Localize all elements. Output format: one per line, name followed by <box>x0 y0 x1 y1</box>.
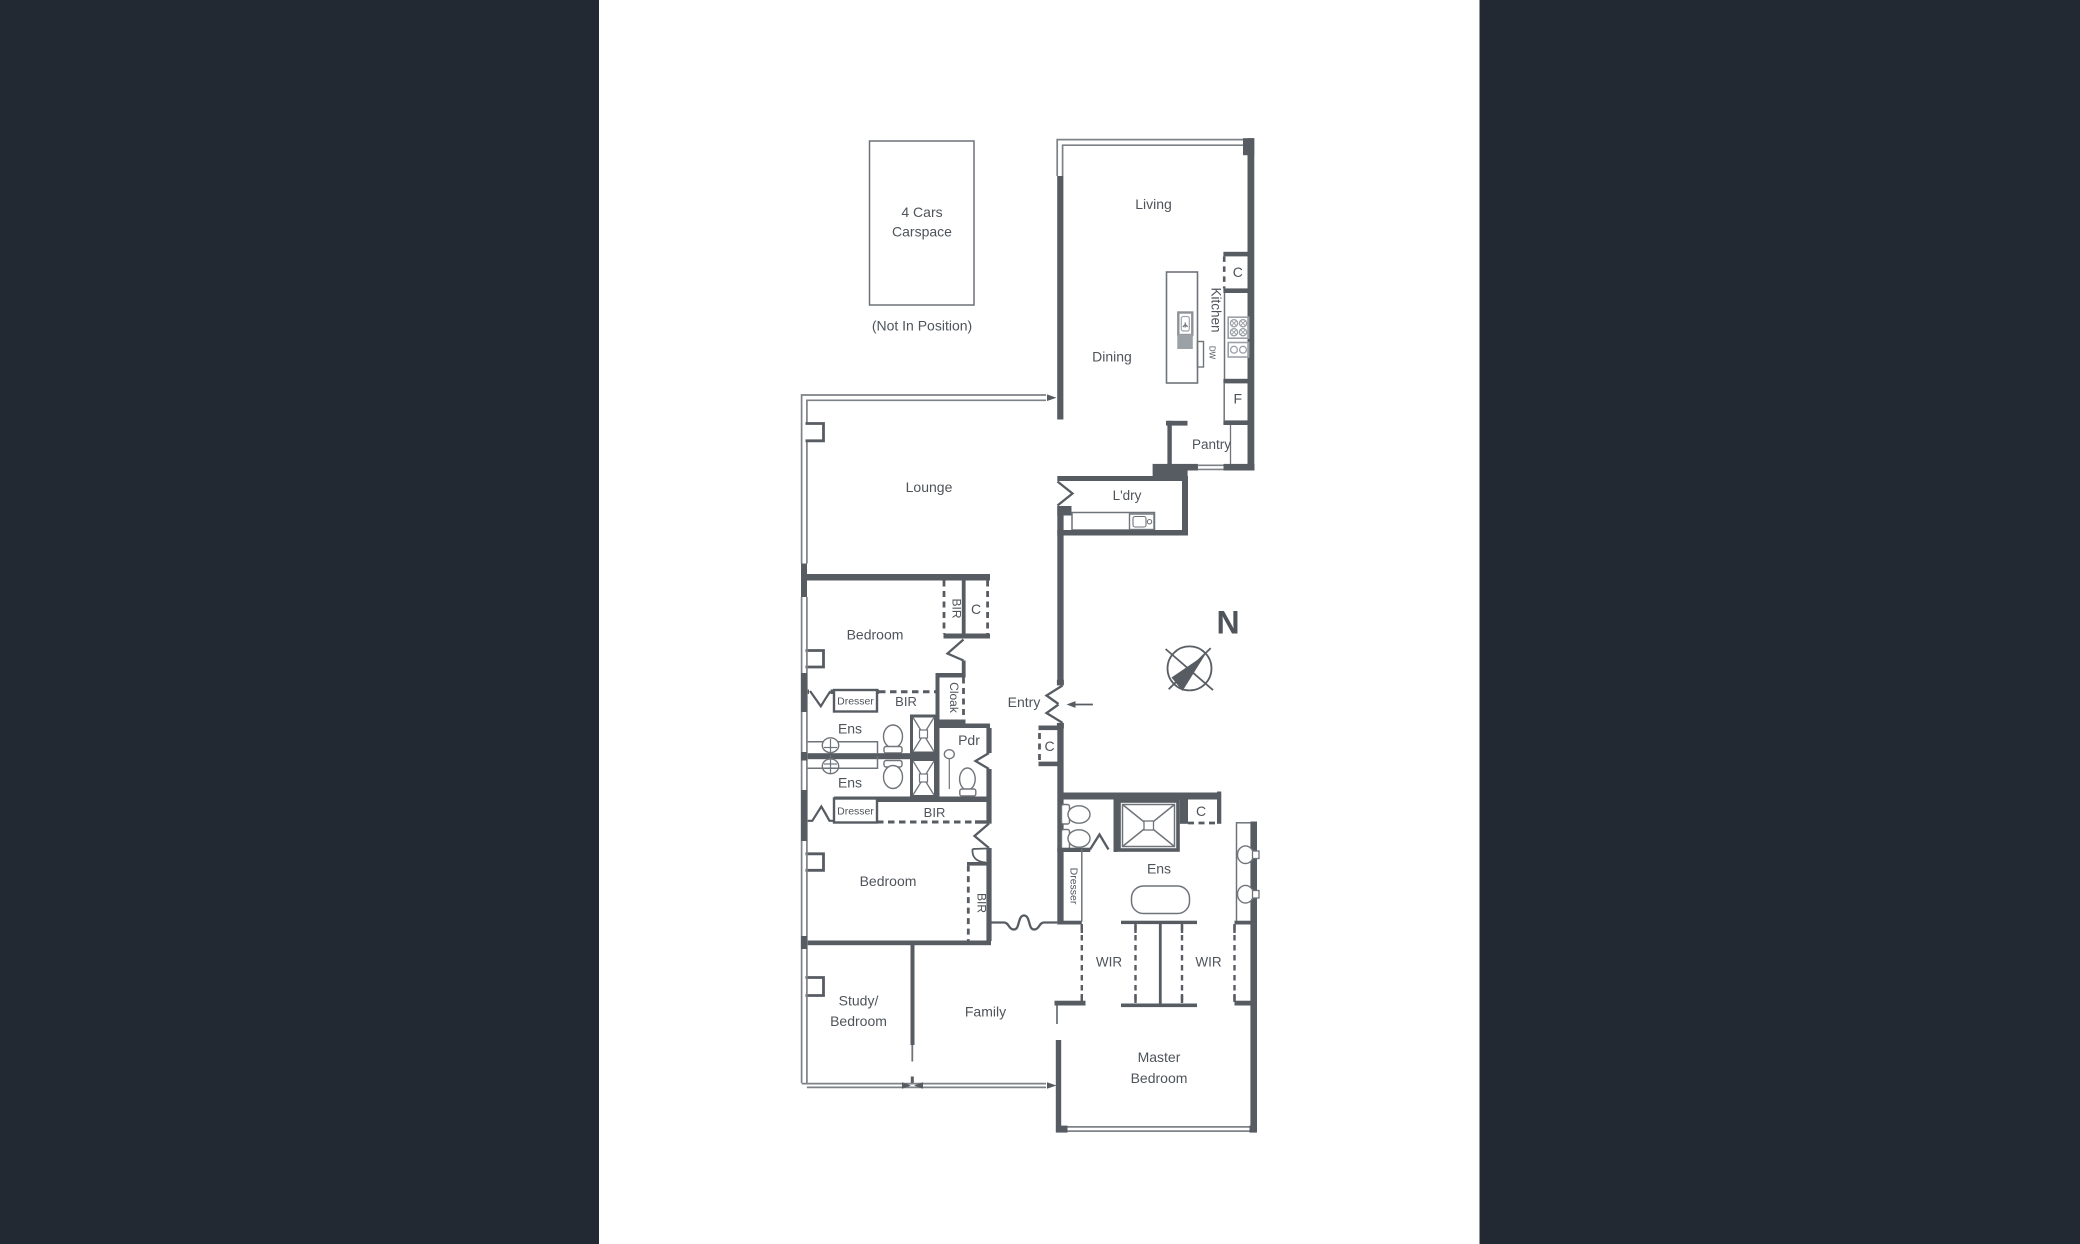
svg-text:C: C <box>1044 738 1054 754</box>
svg-text:Dresser: Dresser <box>837 806 874 818</box>
svg-text:(Not In Position): (Not In Position) <box>872 318 972 334</box>
svg-text:Study/: Study/ <box>839 993 879 1009</box>
svg-text:L'dry: L'dry <box>1113 488 1142 503</box>
svg-text:C: C <box>1233 264 1243 280</box>
svg-text:WIR: WIR <box>1096 955 1122 970</box>
svg-text:WIR: WIR <box>1195 955 1221 970</box>
svg-text:Pantry: Pantry <box>1192 437 1231 452</box>
svg-text:Master: Master <box>1138 1049 1181 1065</box>
svg-text:DW: DW <box>1208 346 1217 360</box>
svg-text:C: C <box>1196 803 1206 819</box>
svg-text:Dresser: Dresser <box>837 696 874 708</box>
svg-text:Ens: Ens <box>838 775 862 791</box>
svg-text:Family: Family <box>965 1004 1006 1020</box>
svg-text:Kitchen: Kitchen <box>1209 287 1224 332</box>
svg-text:Ens: Ens <box>838 721 862 737</box>
svg-text:F: F <box>1234 391 1243 407</box>
svg-text:Pdr: Pdr <box>958 732 980 748</box>
svg-text:Dining: Dining <box>1092 349 1132 365</box>
svg-text:Bedroom: Bedroom <box>1131 1070 1188 1086</box>
svg-text:Bedroom: Bedroom <box>847 627 904 643</box>
svg-text:Ens: Ens <box>1147 861 1171 877</box>
svg-text:Bedroom: Bedroom <box>860 873 917 889</box>
svg-text:Carspace: Carspace <box>892 224 952 240</box>
svg-text:BIR: BIR <box>950 598 964 618</box>
svg-text:BIR: BIR <box>924 805 946 820</box>
svg-text:C: C <box>971 601 981 617</box>
svg-text:BIR: BIR <box>975 893 989 913</box>
svg-text:Cloak: Cloak <box>947 682 961 714</box>
svg-text:Lounge: Lounge <box>906 479 953 495</box>
svg-text:Living: Living <box>1135 196 1172 212</box>
svg-text:4 Cars: 4 Cars <box>901 204 942 220</box>
svg-text:Bedroom: Bedroom <box>830 1013 887 1029</box>
svg-text:Dresser: Dresser <box>1068 868 1080 905</box>
svg-text:BIR: BIR <box>895 694 917 709</box>
svg-text:N: N <box>1216 605 1239 641</box>
svg-text:Entry: Entry <box>1008 694 1041 710</box>
